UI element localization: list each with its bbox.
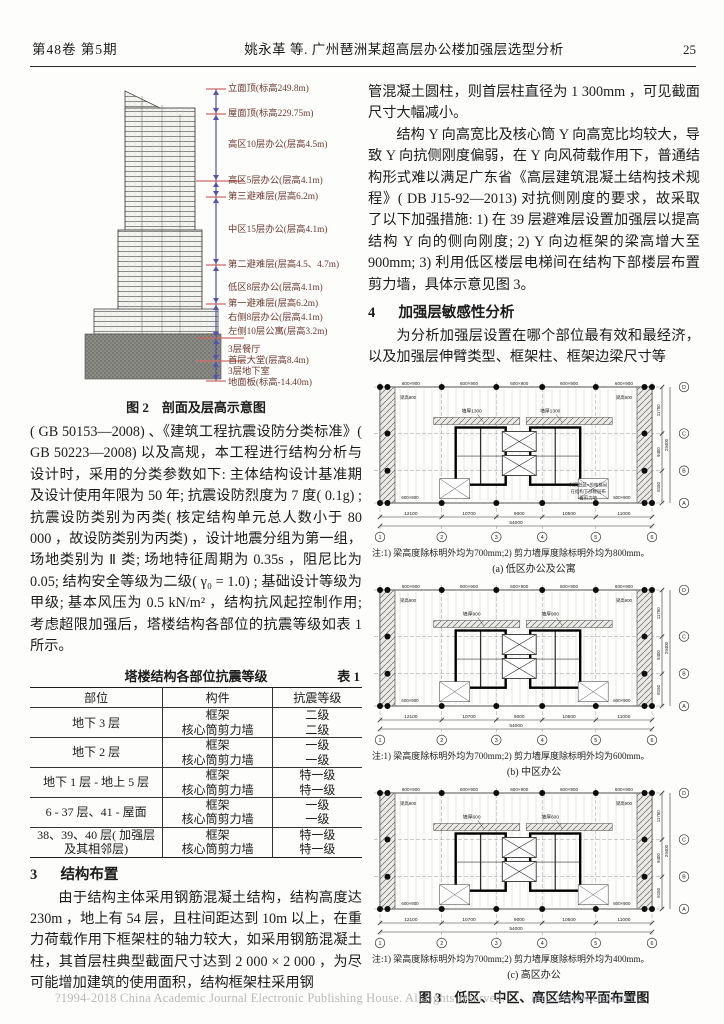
journal-issue: 第48卷 第5期 [32,38,162,58]
plan-caption: (a) 低区办公及公寓 [368,560,700,575]
axis-bubble: 6 [651,535,654,541]
figure2-label: 中区15层办公(层高4.1m) [228,225,327,236]
dimension-label: 11000 [617,917,630,923]
section-4-title: 加强层敏感性分析 [398,305,514,321]
table-1: 塔楼结构各部位抗震等级 表 1 部位构件抗震等级 地下 3 层框架二级核心筒剪力… [30,666,362,857]
axis-bubble: B [682,672,686,678]
plan-note: 注:1) 梁高度除标明外均为700mm;2) 剪力墙厚度除标明外均为800mm。 [368,548,700,559]
table-header-row: 部位构件抗震等级 [30,688,362,708]
page-number: 25 [646,42,696,58]
dimension-label: 10500 [562,714,576,720]
axis-bubble: 4 [541,535,544,541]
table-cell: 特一级 [272,842,362,857]
axis-bubble: C [682,431,686,437]
figure2-label: 第一避难层(层高6.2m) [228,299,318,310]
beam-height-label: 梁高900 [400,800,417,807]
axis-bubble: 1 [379,941,382,947]
dimension-label: 11000 [617,714,630,720]
dimension-label: 12100 [404,511,418,517]
floor-plans: 600×900600×900600×900600×900600×900梁高900… [368,377,700,981]
plan-annotation: 利用低区×的电梯间 [569,482,607,489]
axis-bubble: B [682,875,686,881]
table-part-cell: 38、39、40 层( 加强层及其相邻层) [30,827,163,857]
figure2-label: 地面板(标高-14.40m) [228,378,312,389]
figure-2: 立面顶(标高249.8m)屋面顶(标高229.75m)高区10层办公(层高4.5… [30,82,362,416]
table-cell: 核心筒剪力墙 [163,753,273,768]
dimension-label: 8150 [656,684,661,694]
dimension-label: 10500 [562,511,576,517]
table-cell: 一级 [272,738,362,753]
footer-url: http://www.cnki.net [531,991,634,1005]
beam-size-label: 600×900 [401,698,419,703]
table-cell: 一级 [272,753,362,768]
table-part-cell: 地下 2 层 [30,738,163,768]
building-upper-tower [125,108,195,230]
table-part-cell: 地下 3 层 [30,708,163,738]
wall-thickness-label: 墙厚900 [463,610,481,617]
axis-bubble: 1 [379,738,382,744]
table-cell: 框架 [163,797,273,812]
total-dimension-label: 54000 [509,520,523,526]
figure2-label: 左侧10层公寓(层高3.2m) [228,327,327,338]
axis-bubble: 4 [541,941,544,947]
beam-size-label: 600×900 [560,381,578,386]
table-cell: 框架 [163,768,273,783]
floor-plan-c: 600×900600×900600×900600×900600×900梁高900… [368,783,700,981]
figure2-label: 首层大堂(层高8.4m) [228,356,309,367]
table-cell: 框架 [163,708,273,723]
beam-size-label: 600×900 [401,901,419,906]
beam-height-label: 梁高900 [400,394,417,401]
beam-size-label: 600×900 [510,787,528,792]
plan-annotation: 在结构下部楼层布 [571,488,607,495]
figure2-label: 3层餐厅 [228,345,261,356]
seismic-grade-table: 部位构件抗震等级 地下 3 层框架二级核心筒剪力墙二级地下 2 层框架一级核心筒… [30,687,362,857]
dimension-label: 9400 [656,853,661,863]
table-cell: 特一级 [272,827,362,842]
dimension-label: 9000 [514,511,525,517]
table-row: 6 - 37 层、41 - 屋面框架一级 [30,797,362,812]
table-part-cell: 地下 1 层 - 地上 5 层 [30,768,163,798]
section-3-heading: 3结构布置 [30,863,362,884]
axis-bubble: B [682,469,686,475]
floor-plan-drawing: 600×900600×900600×900600×900600×900梁高900… [368,580,698,746]
axis-bubble: A [682,501,686,507]
footer-copyright: ?1994-2018 China Academic Journal Electr… [55,991,505,1005]
plan-caption: (c) 高区办公 [368,966,700,981]
figure2-label: 高区10层办公(层高4.5m) [228,140,327,151]
beam-height-label: 梁高900 [400,597,417,604]
total-dimension-label: 54000 [509,926,523,932]
wall-thickness-label: 墙厚1300 [540,407,561,414]
plan-note: 注:1) 梁高度除标明外均为700mm;2) 剪力墙厚度除标明外均为600mm。 [368,751,700,762]
dimension-label: 11000 [617,511,630,517]
dimension-label: 9000 [514,714,525,720]
table-1-titlebar: 塔楼结构各部位抗震等级 表 1 [30,666,362,685]
axis-bubble: C [682,634,686,640]
section-4-heading: 4加强层敏感性分析 [368,301,700,322]
axis-bubble: 5 [594,941,597,947]
axis-bubble: 2 [440,535,443,541]
axis-bubble: 6 [651,941,654,947]
beam-size-label: 600×900 [460,381,478,386]
left-paragraph-1: ( GB 50153—2008) 、《建筑工程抗震设防分类标准》( GB 502… [30,422,362,657]
beam-size-label: 600×900 [510,584,528,589]
axis-bubble: C [682,837,686,843]
dimension-label: 10700 [462,511,476,517]
plan-note: 注:1) 梁高度除标明外均为700mm;2) 剪力墙厚度除标明外均为400mm。 [368,954,700,965]
left-column: 立面顶(标高249.8m)屋面顶(标高229.75m)高区10层办公(层高4.5… [30,78,362,995]
dimension-label: 11750 [656,404,661,416]
table-row: 地下 3 层框架二级 [30,708,362,723]
floor-plan-b: 600×900600×900600×900600×900600×900梁高900… [368,580,700,778]
table-cell: 一级 [272,812,362,827]
journal-page: 第48卷 第5期 姚永革 等. 广州琶洲某超高层办公楼加强层选型分析 25 [0,0,724,1024]
beam-size-label: 600×900 [613,901,631,906]
figure2-label: 高区5层办公(层高4.1m) [228,176,323,187]
figure2-label: 右侧8层办公(层高4.1m) [228,313,323,324]
total-dimension-label: 54000 [509,723,523,729]
beam-height-label: 梁高900 [616,394,633,401]
total-dimension-label: 29400 [664,844,669,857]
axis-bubble: A [682,704,686,710]
total-dimension-label: 29400 [664,641,669,654]
table-header-cell: 构件 [163,688,273,708]
table-header-cell: 部位 [30,688,163,708]
section-3-number: 3 [30,867,37,883]
wall-thickness-label: 墙厚1300 [462,407,483,414]
left-paragraph-2: 由于结构主体采用钢筋混凝土结构，结构高度达 230m ，地上有 54 层，且柱间… [30,888,362,995]
header-rule [30,66,696,67]
table-cell: 二级 [272,708,362,723]
building-podium [94,309,218,334]
wall-thickness-label: 墙厚600 [541,813,559,820]
axis-bubble: D [682,791,686,797]
dimension-label: 9400 [656,650,661,660]
beam-height-label: 梁高900 [616,597,633,604]
table-row: 38、39、40 层( 加强层及其相邻层)框架特一级 [30,827,362,842]
beam-size-label: 600×900 [615,787,633,792]
right-paragraph-2: 结构 Y 向高宽比及核心筒 Y 向高宽比均较大，导致 Y 向抗侧刚度偏弱，在 Y… [368,125,700,296]
beam-size-label: 600×900 [402,584,420,589]
dimension-label: 10700 [462,917,476,923]
axis-bubble: 5 [594,738,597,744]
table-cell: 核心筒剪力墙 [163,783,273,798]
right-column: 管混凝土圆柱，则首层柱直径为 1 300mm ，可见截面尺寸大幅减小。 结构 Y… [368,82,700,1006]
page-header: 第48卷 第5期 姚永革 等. 广州琶洲某超高层办公楼加强层选型分析 25 [32,38,696,58]
table-1-title: 塔楼结构各部位抗震等级 [124,669,267,684]
beam-size-label: 600×900 [460,787,478,792]
dimension-label: 9400 [656,447,661,457]
beam-size-label: 600×900 [615,584,633,589]
figure2-label: 第三避难层(层高6.2m) [228,192,318,203]
axis-bubble: 5 [594,535,597,541]
beam-size-label: 600×900 [560,584,578,589]
floor-plan-a: 600×900600×900600×900600×900600×900梁高900… [368,377,700,575]
axis-bubble: D [682,588,686,594]
right-paragraph-3: 为分析加强层设置在哪个部位最有效和最经济，以及加强层伸臂类型、框架柱、框架边梁尺… [368,326,700,369]
total-dimension-label: 29400 [664,438,669,451]
dimension-label: 8150 [656,887,661,897]
figure-3: 600×900600×900600×900600×900600×900梁高900… [368,377,700,1006]
plan-caption: (b) 中区办公 [368,763,700,778]
wall-thickness-label: 墙厚900 [541,610,559,617]
wall-thickness-label: 墙厚600 [463,813,481,820]
section-3-title: 结构布置 [60,867,118,883]
beam-size-label: 600×900 [402,787,420,792]
axis-bubble: 3 [495,535,498,541]
table-cell: 一级 [272,797,362,812]
plan-annotation: 置剪力墙 [579,495,597,502]
table-part-cell: 6 - 37 层、41 - 屋面 [30,797,163,827]
table-cell: 框架 [163,827,273,842]
dimension-label: 9000 [514,917,525,923]
dimension-label: 10500 [562,917,576,923]
axis-bubble: 3 [495,738,498,744]
beam-size-label: 600×900 [510,381,528,386]
dimension-label: 12100 [404,917,418,923]
axis-bubble: 4 [541,738,544,744]
table-row: 地下 1 层 - 地上 5 层框架特一级 [30,768,362,783]
axis-bubble: 2 [440,738,443,744]
beam-size-label: 600×900 [402,381,420,386]
axis-bubble: D [682,385,686,391]
figure2-label: 第二避难层(层高4.5、4.7m) [228,260,339,271]
axis-bubble: A [682,907,686,913]
figure2-label: 屋面顶(标高229.75m) [228,109,313,120]
table-cell: 二级 [272,723,362,738]
building-section-drawing [30,82,360,394]
figure2-label: 3层地下室 [228,367,270,378]
table-cell: 特一级 [272,783,362,798]
ground-hatch [85,334,221,379]
beam-size-label: 600×900 [460,584,478,589]
beam-size-label: 600×900 [560,787,578,792]
dimension-label: 12100 [404,714,418,720]
beam-size-label: 600×900 [613,698,631,703]
figure-2-caption: 图 2 剖面及层高示意图 [30,397,362,416]
table-cell: 核心筒剪力墙 [163,812,273,827]
table-row: 地下 2 层框架一级 [30,738,362,753]
figure2-label: 立面顶(标高249.8m) [228,84,309,95]
axis-bubble: 2 [440,941,443,947]
beam-height-label: 梁高900 [616,800,633,807]
axis-bubble: 3 [495,941,498,947]
page-footer: ?1994-2018 China Academic Journal Electr… [55,991,634,1006]
table-cell: 框架 [163,738,273,753]
table-cell: 核心筒剪力墙 [163,723,273,738]
dimension-label: 11750 [656,607,661,619]
beam-size-label: 600×900 [615,381,633,386]
figure2-label: 低区8层办公(层高4.1m) [228,283,323,294]
table-header-cell: 抗震等级 [272,688,362,708]
table-1-tag: 表 1 [337,666,360,685]
table-cell: 核心筒剪力墙 [163,842,273,857]
dimension-label: 11750 [656,810,661,822]
floor-plan-drawing: 600×900600×900600×900600×900600×900梁高900… [368,783,698,949]
beam-size-label: 600×900 [401,495,419,500]
dimension-label: 10700 [462,714,476,720]
floor-plan-drawing: 600×900600×900600×900600×900600×900梁高900… [368,377,698,543]
right-paragraph-1: 管混凝土圆柱，则首层柱直径为 1 300mm ，可见截面尺寸大幅减小。 [368,82,700,125]
axis-bubble: 1 [379,535,382,541]
table-cell: 特一级 [272,768,362,783]
section-4-number: 4 [368,305,375,321]
running-title: 姚永革 等. 广州琶洲某超高层办公楼加强层选型分析 [162,38,646,58]
dimension-label: 8150 [656,481,661,491]
beam-size-label: 600×900 [613,495,631,500]
axis-bubble: 6 [651,738,654,744]
